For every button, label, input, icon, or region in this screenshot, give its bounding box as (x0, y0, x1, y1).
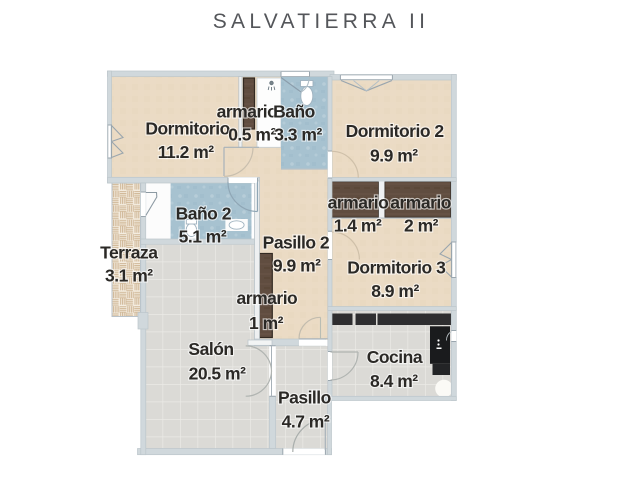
svg-text:1 m²: 1 m² (249, 313, 284, 333)
svg-text:armario: armario (390, 192, 451, 212)
svg-text:Baño: Baño (273, 101, 315, 121)
svg-text:3.3 m²: 3.3 m² (274, 125, 322, 145)
svg-text:Cocina: Cocina (367, 347, 423, 367)
svg-text:20.5 m²: 20.5 m² (189, 364, 246, 384)
svg-text:armario: armario (328, 192, 389, 212)
svg-text:armario: armario (237, 288, 298, 308)
svg-text:9.9 m²: 9.9 m² (370, 145, 418, 165)
svg-text:Dormitorio 2: Dormitorio 2 (346, 121, 445, 141)
svg-text:8.4 m²: 8.4 m² (370, 371, 418, 391)
svg-text:5.1 m²: 5.1 m² (179, 227, 227, 247)
svg-text:4.7 m²: 4.7 m² (282, 411, 330, 431)
svg-text:8.9 m²: 8.9 m² (371, 281, 419, 301)
svg-text:11.2 m²: 11.2 m² (158, 142, 215, 162)
svg-text:armario: armario (217, 101, 278, 121)
svg-text:Salón: Salón (188, 339, 233, 359)
svg-text:Baño 2: Baño 2 (176, 203, 232, 223)
svg-text:Pasillo: Pasillo (278, 388, 331, 408)
svg-text:2 m²: 2 m² (404, 215, 439, 235)
svg-text:Terraza: Terraza (100, 242, 158, 262)
svg-text:SALVATIERRA II: SALVATIERRA II (213, 10, 430, 33)
svg-text:Pasillo 2: Pasillo 2 (263, 233, 330, 253)
svg-text:1.4 m²: 1.4 m² (334, 215, 382, 235)
svg-text:0.5 m²: 0.5 m² (228, 125, 276, 145)
svg-text:3.1 m²: 3.1 m² (105, 266, 153, 286)
svg-text:9.9 m²: 9.9 m² (273, 256, 321, 276)
svg-text:Dormitorio 3: Dormitorio 3 (347, 258, 446, 278)
